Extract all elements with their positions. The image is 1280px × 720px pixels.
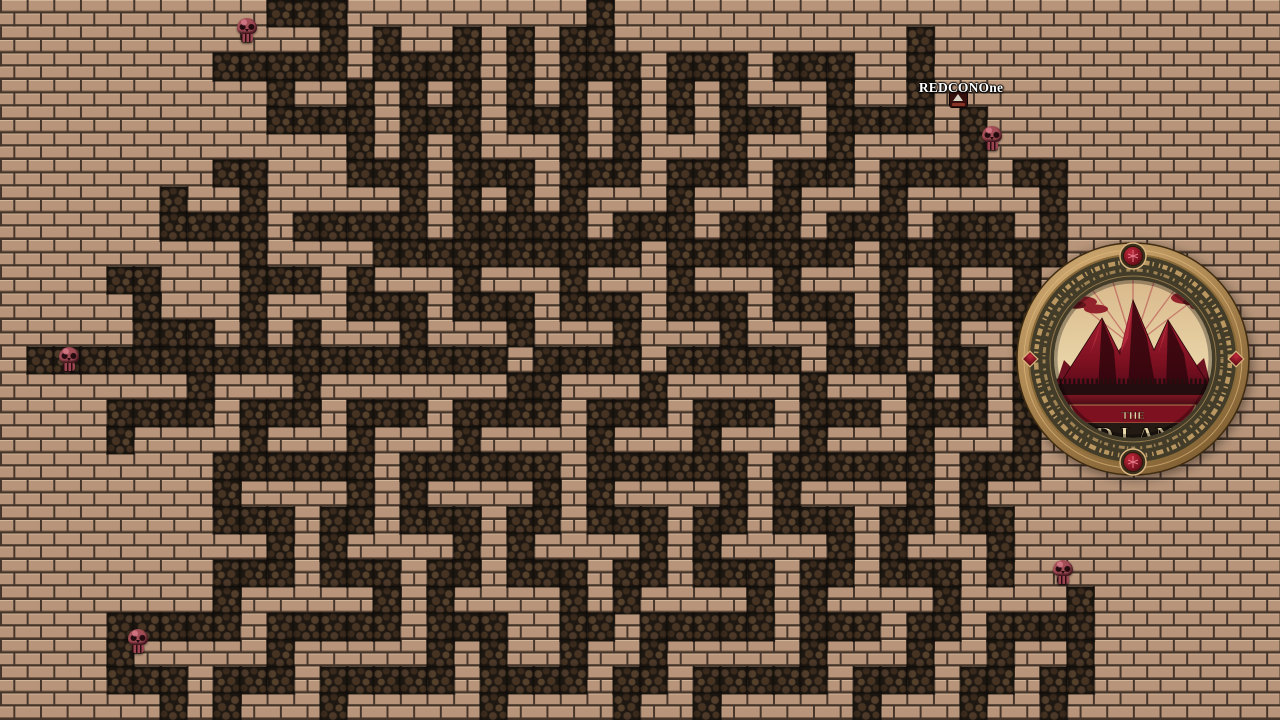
red-lands-logo: THE RED LANDS bbox=[1016, 242, 1250, 476]
logo-text-the: THE bbox=[1121, 410, 1144, 422]
skull-icon bbox=[1052, 560, 1074, 586]
skull-icon bbox=[58, 347, 80, 373]
player-name-label: REDCONOne bbox=[919, 80, 1003, 96]
skull-icon bbox=[981, 126, 1003, 152]
skull-icon bbox=[236, 18, 258, 44]
logo-gem-bottom-icon bbox=[1120, 449, 1146, 475]
game-viewport[interactable]: REDCONOne bbox=[0, 0, 1280, 720]
skull-icon bbox=[127, 629, 149, 655]
logo-gem-top-icon bbox=[1120, 243, 1146, 269]
